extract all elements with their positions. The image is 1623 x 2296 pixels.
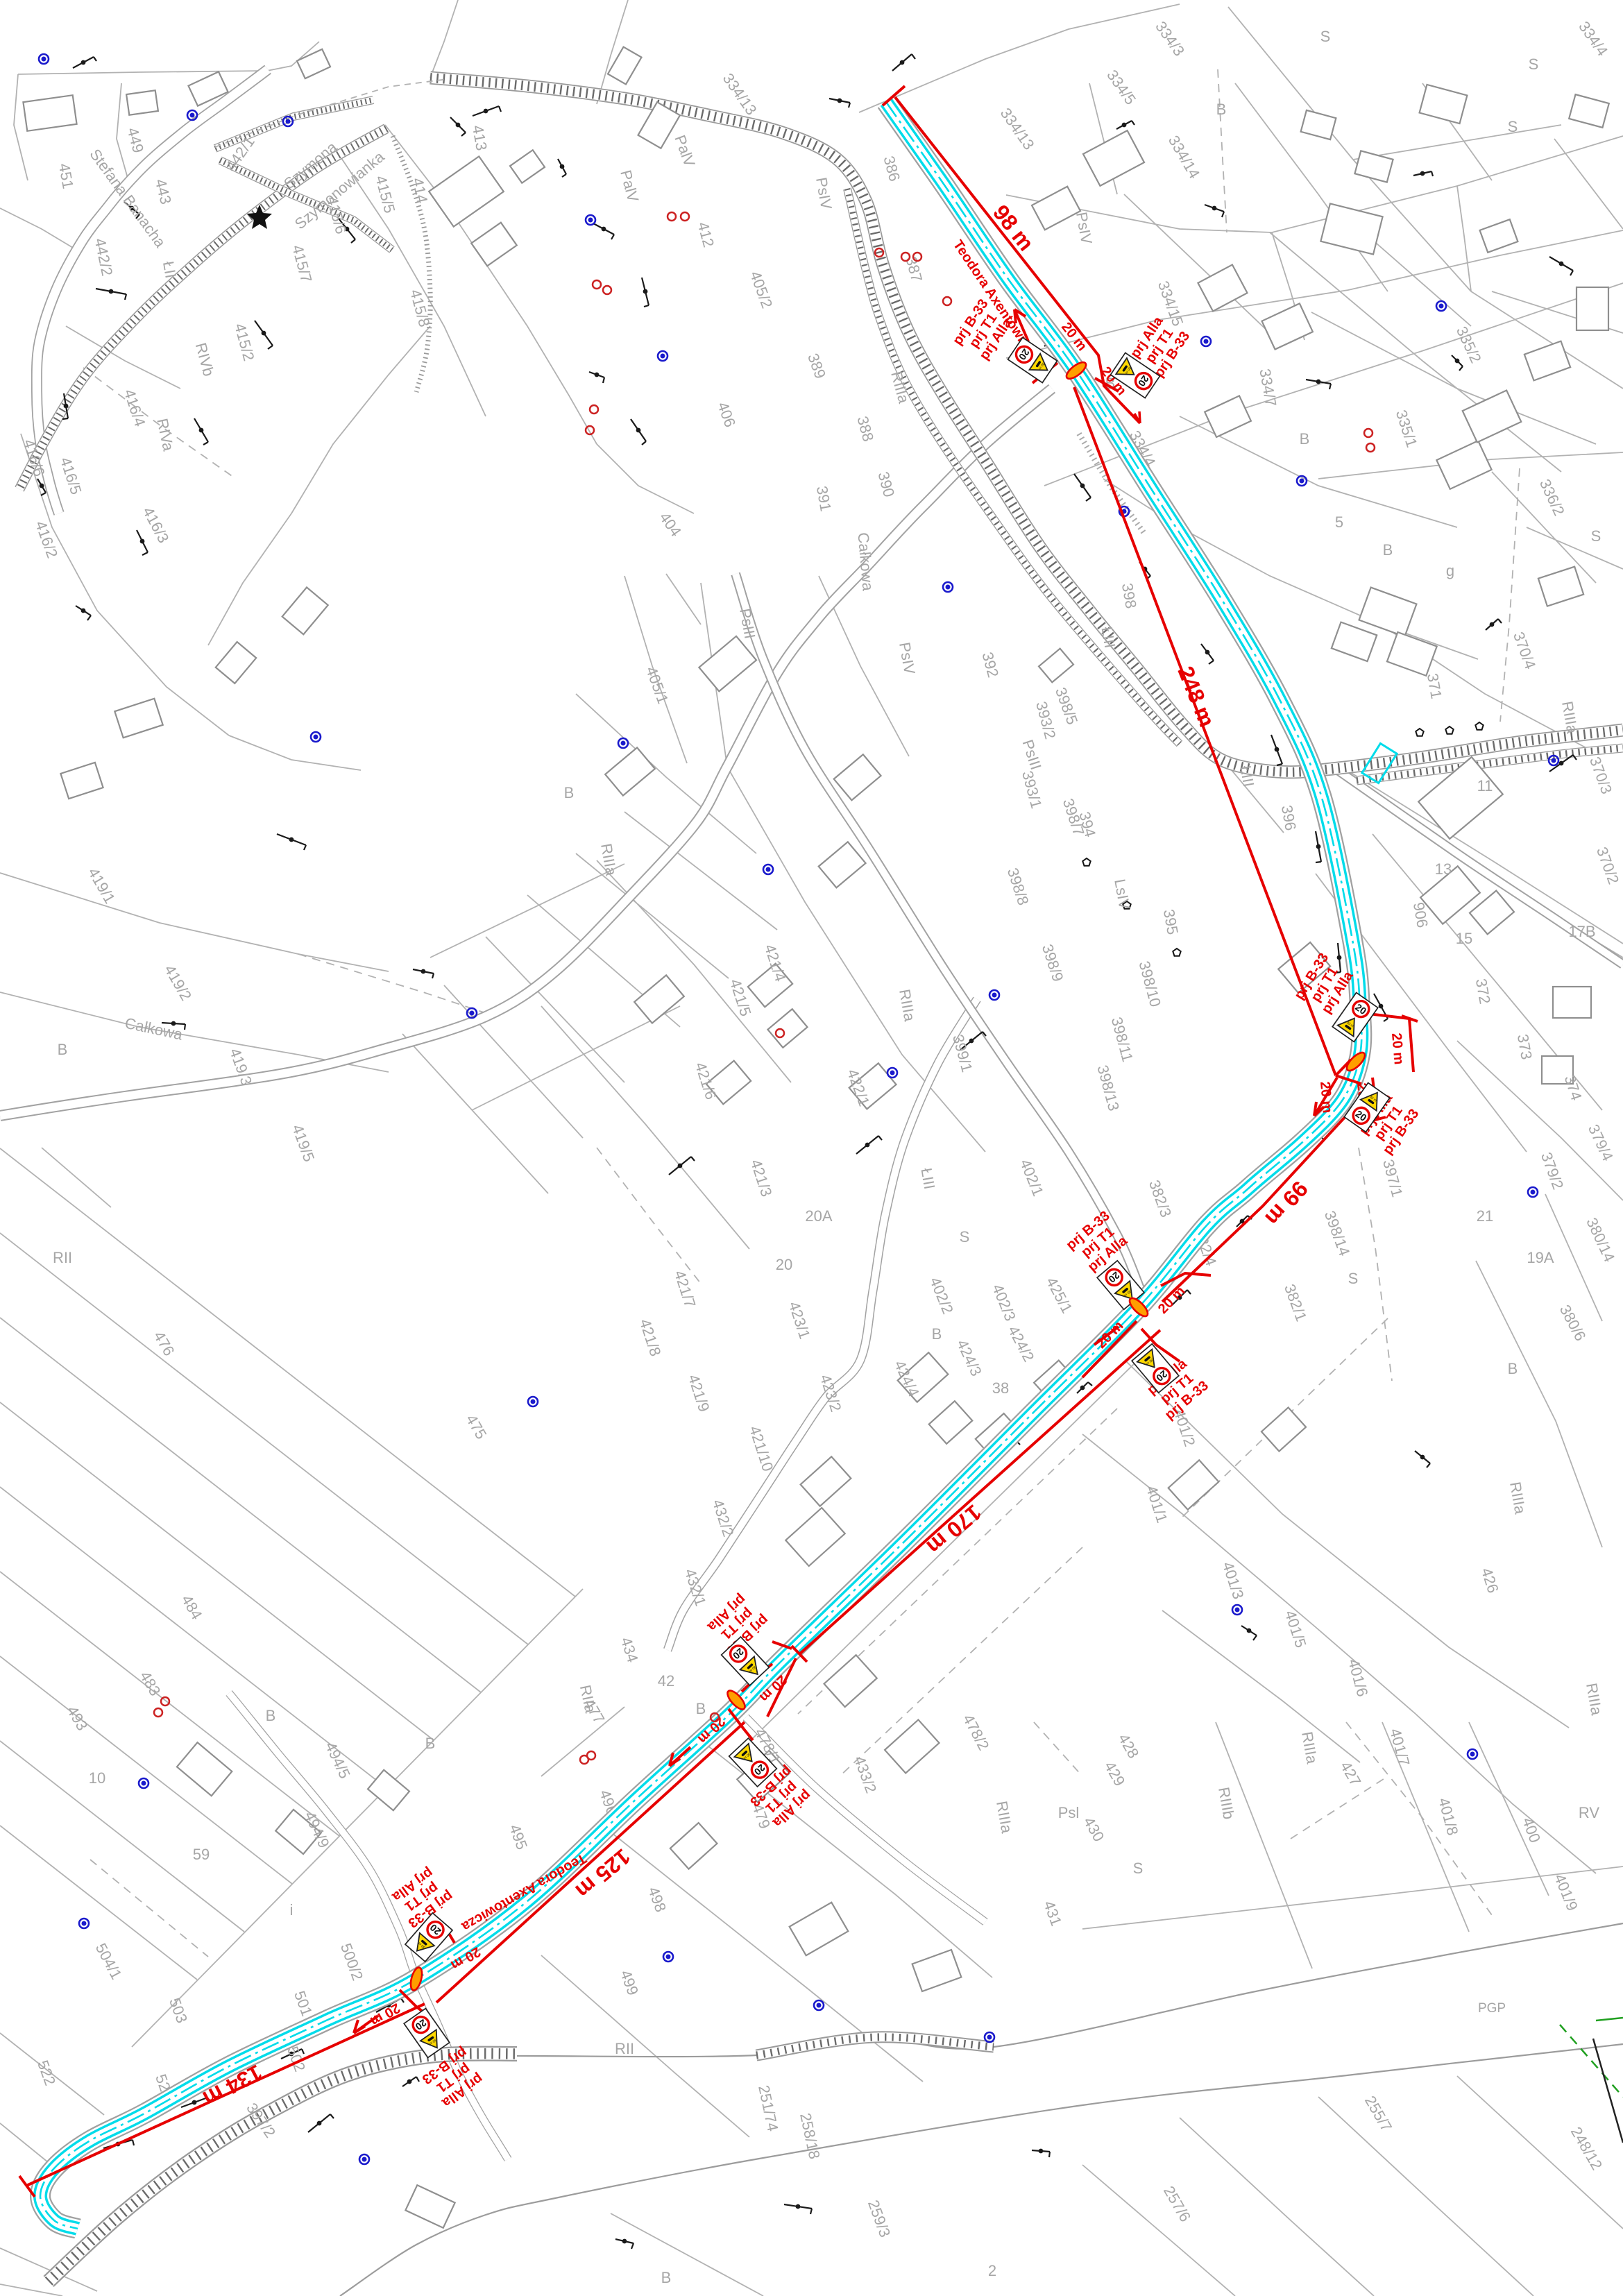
svg-text:B: B: [932, 1325, 942, 1343]
svg-text:S: S: [960, 1228, 970, 1245]
svg-text:21: 21: [1477, 1207, 1493, 1225]
svg-text:17B: 17B: [1568, 923, 1595, 940]
svg-text:S: S: [1133, 1860, 1144, 1877]
svg-text:38: 38: [992, 1379, 1009, 1397]
svg-text:RII: RII: [615, 2040, 634, 2057]
svg-text:42: 42: [658, 1672, 674, 1690]
svg-text:PGP: PGP: [1478, 2001, 1506, 2016]
svg-text:i: i: [290, 1901, 294, 1919]
svg-text:B: B: [1508, 1360, 1518, 1377]
svg-text:20 m: 20 m: [1388, 1032, 1407, 1065]
svg-text:20: 20: [776, 1256, 792, 1273]
svg-text:10: 10: [89, 1769, 105, 1787]
svg-text:B: B: [564, 784, 575, 801]
svg-text:11: 11: [1477, 777, 1493, 794]
svg-text:ŁIII: ŁIII: [917, 1166, 938, 1190]
svg-text:B: B: [1383, 541, 1393, 559]
svg-text:B: B: [1216, 101, 1227, 118]
svg-text:B: B: [425, 1735, 436, 1752]
svg-text:B: B: [661, 2269, 672, 2286]
svg-text:ŁIII: ŁIII: [1237, 764, 1257, 788]
svg-text:ŁII: ŁII: [160, 260, 180, 279]
svg-text:Psl: Psl: [1058, 1804, 1080, 1821]
svg-text:13: 13: [1435, 860, 1452, 878]
svg-text:RII: RII: [53, 1249, 72, 1266]
svg-text:S: S: [1320, 28, 1331, 45]
svg-text:RV: RV: [1579, 1804, 1599, 1821]
svg-text:B: B: [1300, 430, 1310, 448]
svg-text:g: g: [1446, 562, 1454, 579]
svg-text:5: 5: [1335, 513, 1343, 531]
svg-text:S: S: [1348, 1270, 1359, 1287]
svg-text:B: B: [696, 1700, 706, 1717]
svg-text:S: S: [1529, 56, 1539, 73]
svg-text:B: B: [58, 1041, 68, 1058]
svg-text:S: S: [1591, 527, 1601, 545]
svg-text:S: S: [1508, 118, 1518, 135]
svg-text:20A: 20A: [805, 1207, 832, 1225]
svg-text:19A: 19A: [1527, 1249, 1554, 1266]
svg-text:2: 2: [988, 2262, 996, 2279]
svg-text:B: B: [266, 1707, 276, 1724]
svg-text:ŁIII: ŁIII: [1098, 625, 1119, 649]
svg-text:59: 59: [193, 1846, 210, 1863]
svg-text:15: 15: [1456, 930, 1472, 947]
svg-text:20 m: 20 m: [1317, 1081, 1335, 1114]
